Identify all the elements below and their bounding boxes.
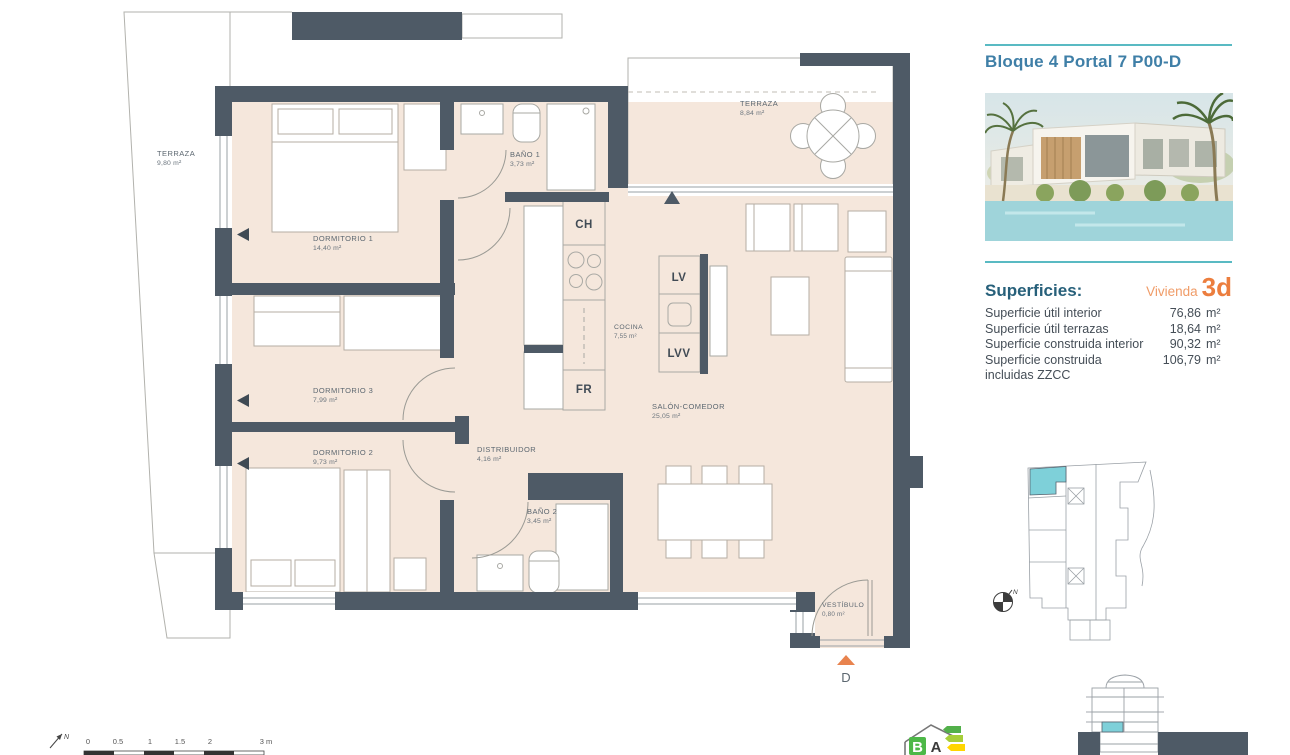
svg-text:7,99 m²: 7,99 m² — [313, 397, 338, 404]
svg-text:3 m: 3 m — [260, 737, 273, 746]
ground-mass — [1158, 732, 1248, 755]
floor-plan: CH FR LV LVV — [0, 0, 960, 755]
svg-text:9,80 m²: 9,80 m² — [157, 160, 182, 167]
divider-top — [985, 44, 1232, 46]
building-render-image — [985, 93, 1233, 241]
svg-text:COCINA: COCINA — [614, 324, 643, 331]
energy-rating-logo: B A — [903, 720, 967, 755]
bedroom1-cabinet — [404, 104, 446, 170]
svg-text:2: 2 — [208, 737, 212, 746]
svg-text:25,05 m²: 25,05 m² — [652, 413, 681, 420]
energy-letter-b: B — [912, 739, 923, 755]
energy-letter-a: A — [931, 739, 942, 755]
appliance-fr: FR — [576, 384, 593, 396]
appliance-ch: CH — [575, 219, 593, 231]
vivienda-label: Vivienda — [1146, 284, 1198, 299]
compass-icon: N — [988, 586, 1018, 616]
dining-set — [658, 466, 772, 558]
svg-text:9,73 m²: 9,73 m² — [313, 459, 338, 466]
svg-text:0,80 m²: 0,80 m² — [822, 611, 845, 618]
vivienda-number: 3d — [1202, 272, 1232, 302]
ground-mass — [1078, 732, 1100, 755]
svg-text:TERRAZA: TERRAZA — [740, 99, 778, 108]
svg-text:DORMITORIO 2: DORMITORIO 2 — [313, 448, 373, 457]
room-label-terraza-left: TERRAZA 9,80 m² — [157, 149, 195, 167]
svg-text:BAÑO 1: BAÑO 1 — [510, 150, 540, 159]
north-arrow-icon: N — [50, 734, 70, 748]
energy-arrow-icon — [947, 744, 965, 751]
energy-arrow-icon — [945, 735, 963, 742]
entrance-arrow-icon — [837, 655, 855, 665]
building-section — [1078, 668, 1248, 755]
svg-text:0.5: 0.5 — [113, 737, 123, 746]
svg-text:7,55 m²: 7,55 m² — [614, 333, 637, 340]
svg-text:3,73 m²: 3,73 m² — [510, 161, 535, 168]
north-letter: N — [64, 734, 70, 741]
svg-text:DORMITORIO 1: DORMITORIO 1 — [313, 234, 373, 243]
svg-text:TERRAZA: TERRAZA — [157, 149, 195, 158]
superficies-table: Superficie útil interior 76,86 m² Superf… — [985, 306, 1232, 384]
svg-text:DORMITORIO 3: DORMITORIO 3 — [313, 386, 373, 395]
svg-text:1.5: 1.5 — [175, 737, 185, 746]
svg-text:SALÓN-COMEDOR: SALÓN-COMEDOR — [652, 402, 725, 411]
svg-text:4,16 m²: 4,16 m² — [477, 456, 502, 463]
appliance-lv: LV — [672, 272, 687, 284]
appliance-lvv: LVV — [667, 348, 690, 360]
divider-superficies — [985, 261, 1232, 263]
svg-text:1: 1 — [148, 737, 152, 746]
svg-text:0: 0 — [86, 737, 90, 746]
table-row: Superficie útil terrazas 18,64 m² — [985, 322, 1232, 338]
bedroom1-bed — [272, 104, 398, 232]
table-row: Superficie útil interior 76,86 m² — [985, 306, 1232, 322]
unit-highlight — [1030, 467, 1066, 496]
svg-text:BAÑO 2: BAÑO 2 — [527, 507, 557, 516]
page-title: Bloque 4 Portal 7 P00-D — [985, 52, 1181, 72]
scale-bar: N 0 0.5 1 1.5 2 3 m — [36, 726, 316, 755]
compass-letter: N — [1013, 589, 1018, 596]
table-row: Superficie construida incluidas ZZCC 106… — [985, 353, 1232, 384]
entrance-marker: D — [837, 655, 855, 685]
svg-text:VESTÍBULO: VESTÍBULO — [822, 600, 864, 609]
entrance-letter: D — [841, 670, 850, 685]
svg-text:3,45 m²: 3,45 m² — [527, 518, 552, 525]
superficies-header: Superficies: Vivienda3d — [985, 272, 1232, 303]
svg-text:DISTRIBUIDOR: DISTRIBUIDOR — [477, 445, 536, 454]
svg-text:8,84 m²: 8,84 m² — [740, 110, 765, 117]
table-row: Superficie construida interior 90,32 m² — [985, 337, 1232, 353]
scale-ticks: 0 0.5 1 1.5 2 3 m — [86, 737, 272, 746]
hall-closets — [524, 206, 563, 409]
key-plan — [1008, 448, 1158, 643]
svg-text:14,40 m²: 14,40 m² — [313, 245, 342, 252]
superficies-heading: Superficies: — [985, 281, 1082, 301]
unit-highlight-section — [1102, 722, 1123, 732]
bedroom3-furniture — [254, 296, 446, 350]
